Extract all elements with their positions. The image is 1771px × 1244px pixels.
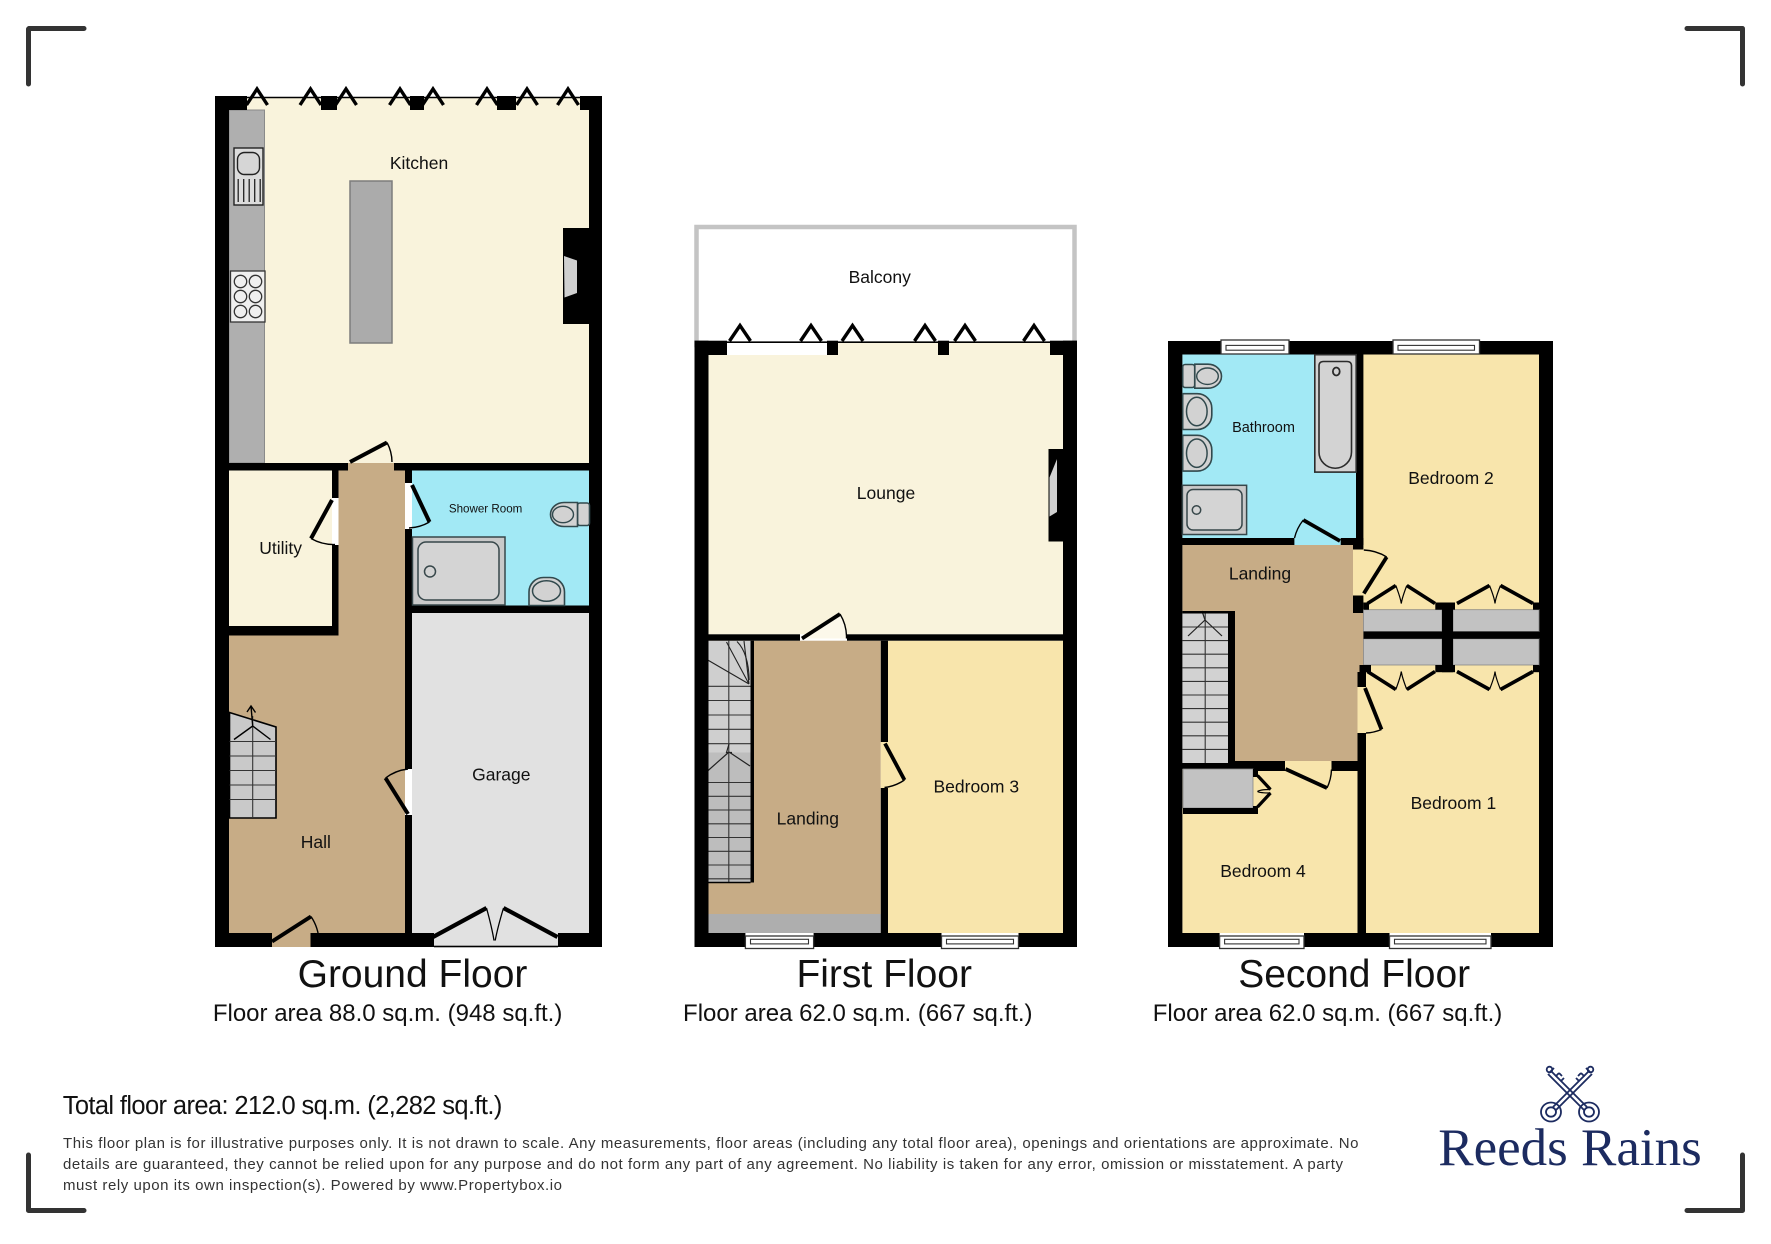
svg-text:Bedroom 4: Bedroom 4 bbox=[1220, 861, 1306, 881]
svg-text:details are guaranteed, they c: details are guaranteed, they cannot be r… bbox=[63, 1156, 1344, 1173]
svg-text:Hall: Hall bbox=[301, 832, 331, 852]
svg-text:Bedroom 1: Bedroom 1 bbox=[1411, 793, 1497, 813]
svg-text:Ground Floor: Ground Floor bbox=[298, 953, 528, 996]
svg-text:Floor area 62.0 sq.m. (667 sq.: Floor area 62.0 sq.m. (667 sq.ft.) bbox=[683, 1000, 1033, 1027]
svg-text:Floor area 88.0 sq.m. (948 sq.: Floor area 88.0 sq.m. (948 sq.ft.) bbox=[213, 1000, 563, 1027]
svg-text:must rely upon its own inspect: must rely upon its own inspection(s). Po… bbox=[63, 1177, 563, 1194]
svg-text:Landing: Landing bbox=[1229, 564, 1291, 584]
svg-text:This floor plan is for illustr: This floor plan is for illustrative purp… bbox=[63, 1135, 1359, 1152]
svg-text:Balcony: Balcony bbox=[849, 267, 912, 287]
svg-text:Bedroom 3: Bedroom 3 bbox=[933, 777, 1019, 797]
svg-text:Second Floor: Second Floor bbox=[1238, 953, 1470, 996]
svg-text:Landing: Landing bbox=[777, 809, 839, 829]
svg-text:Utility: Utility bbox=[259, 538, 302, 558]
svg-text:Bedroom 2: Bedroom 2 bbox=[1408, 468, 1494, 488]
svg-text:First Floor: First Floor bbox=[796, 953, 972, 996]
svg-text:Lounge: Lounge bbox=[857, 483, 915, 503]
svg-text:Kitchen: Kitchen bbox=[390, 153, 448, 173]
svg-text:Total floor area: 212.0 sq.m.: Total floor area: 212.0 sq.m. (2,282 sq.… bbox=[63, 1092, 502, 1120]
svg-text:Bathroom: Bathroom bbox=[1232, 420, 1295, 436]
svg-text:Garage: Garage bbox=[472, 765, 530, 785]
svg-text:Floor area 62.0 sq.m. (667 sq.: Floor area 62.0 sq.m. (667 sq.ft.) bbox=[1153, 1000, 1503, 1027]
svg-text:Reeds Rains: Reeds Rains bbox=[1438, 1119, 1702, 1177]
svg-text:Shower Room: Shower Room bbox=[449, 503, 522, 516]
